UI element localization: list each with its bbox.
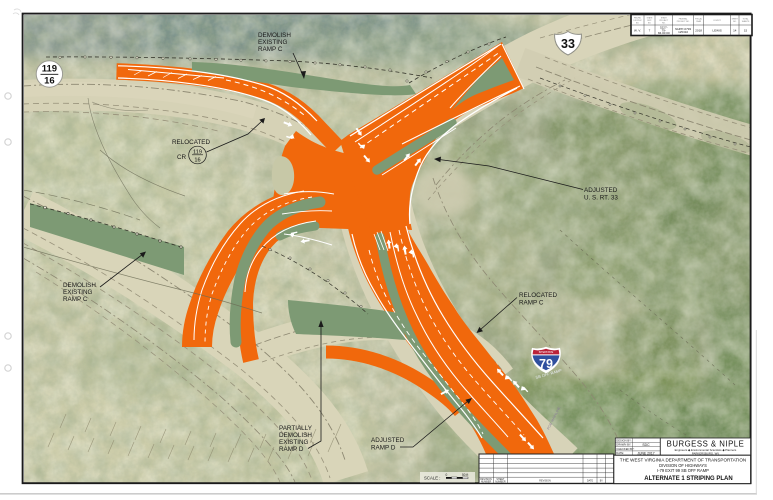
svg-text:W. V.: W. V. (634, 28, 641, 32)
svg-text:84.00 00: 84.00 00 (658, 31, 670, 35)
svg-text:INTERSTATE: INTERSTATE (539, 351, 554, 354)
svg-text:79: 79 (539, 357, 553, 371)
svg-text:SHEETS: SHEETS (742, 21, 750, 23)
svg-text:16: 16 (44, 76, 55, 87)
svg-text:EXISTING: EXISTING (63, 289, 92, 296)
svg-text:PARKERSBURG, WV: PARKERSBURG, WV (692, 451, 719, 455)
svg-text:DRAWN BY:: DRAWN BY: (616, 443, 631, 447)
svg-text:BY: BY (600, 479, 604, 482)
svg-text:50 ft: 50 ft (462, 473, 468, 477)
svg-text:RAMP C: RAMP C (519, 300, 544, 307)
svg-text:NUMBER: NUMBER (495, 481, 506, 484)
svg-text:RAMP C: RAMP C (63, 296, 88, 303)
svg-text:DATE:: DATE: (616, 451, 624, 455)
svg-text:I-79 EXIT 99 SB OFF RAMP: I-79 EXIT 99 SB OFF RAMP (657, 468, 709, 473)
svg-text:PARTIALLY: PARTIALLY (279, 425, 313, 432)
svg-text:DATE: DATE (587, 479, 594, 482)
svg-text:CHECKED BY:: CHECKED BY: (616, 447, 634, 451)
svg-text:DESIGN BY:: DESIGN BY: (616, 438, 631, 442)
svg-text:LEWIS: LEWIS (712, 28, 721, 32)
svg-text:NO.: NO. (636, 23, 640, 25)
svg-text:EXISTING: EXISTING (258, 39, 287, 46)
svg-text:REVISION: REVISION (539, 479, 551, 482)
svg-text:U. S. RT. 33: U. S. RT. 33 (584, 195, 618, 202)
svg-text:SDC: SDC (642, 443, 650, 447)
svg-text:15: 15 (744, 28, 748, 32)
svg-text:DEMOLISH: DEMOLISH (279, 432, 312, 439)
svg-text:EXISTING: EXISTING (279, 439, 308, 446)
svg-text:14: 14 (733, 28, 737, 32)
svg-text:125310: 125310 (678, 30, 688, 34)
svg-text:YEAR: YEAR (696, 20, 702, 23)
svg-text:RAMP D: RAMP D (371, 445, 396, 452)
svg-text:NO.: NO. (662, 23, 666, 25)
svg-text:2018: 2018 (695, 28, 702, 32)
svg-text:NUMBER: NUMBER (481, 481, 492, 484)
svg-text:33: 33 (561, 37, 575, 51)
svg-text:ADJUSTED: ADJUSTED (584, 187, 618, 194)
svg-text:NO.: NO. (648, 23, 652, 25)
svg-text:DEMOLISH: DEMOLISH (63, 282, 96, 289)
svg-text:RAMP D: RAMP D (279, 446, 304, 453)
svg-text:RELOCATED: RELOCATED (172, 139, 210, 146)
svg-text:CR: CR (177, 154, 187, 161)
svg-text:PROJECT NO.: PROJECT NO. (677, 21, 690, 23)
svg-text:RAMP C: RAMP C (258, 46, 283, 53)
svg-text:ALTERNATE 1 STRIPING PLAN: ALTERNATE 1 STRIPING PLAN (644, 476, 732, 482)
svg-text:SCALE :: SCALE : (424, 475, 440, 480)
svg-text:DEMOLISH: DEMOLISH (258, 32, 291, 39)
svg-text:RELOCATED: RELOCATED (519, 292, 557, 299)
svg-text:COUNTY: COUNTY (713, 20, 722, 22)
svg-text:ADJUSTED: ADJUSTED (371, 437, 405, 444)
svg-text:119: 119 (42, 64, 57, 75)
svg-text:16: 16 (194, 158, 200, 164)
svg-text:0: 0 (446, 473, 448, 477)
svg-text:NO.: NO. (733, 21, 737, 23)
